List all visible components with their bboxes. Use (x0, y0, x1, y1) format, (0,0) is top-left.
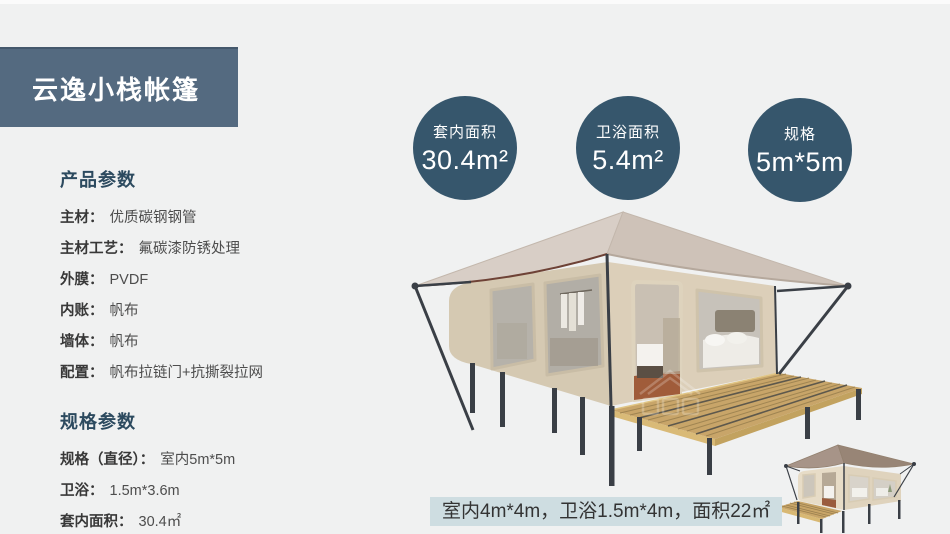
spec-value: 优质碳钢钢管 (110, 210, 197, 226)
spec-row-wall: 墙体：帆布 (60, 330, 400, 351)
spec-label: 外膜： (60, 272, 104, 288)
small-tent-roof (786, 445, 914, 468)
spec-value: 30.4㎡ (139, 514, 182, 530)
spec-row-outer-membrane: 外膜：PVDF (60, 268, 400, 289)
tent-side-windows (491, 275, 603, 375)
spec-value: 室内5m*5m (160, 452, 235, 468)
spec-label: 主材： (60, 210, 104, 226)
spec-row-configuration: 配置：帆布拉链门+抗撕裂拉网 (60, 361, 400, 382)
caption-text: 室内4m*4m，卫浴1.5m*4m，面积22㎡ (442, 501, 770, 522)
spec-row-inner-tent: 内账：帆布 (60, 299, 400, 320)
spec-value: 1.5m*3.6m (110, 483, 180, 499)
spec-row-interior-area: 套内面积：30.4㎡ (60, 510, 400, 531)
spec-row-size: 规格（直径）：室内5m*5m (60, 448, 400, 469)
stat-circle-label: 规格 (748, 123, 852, 144)
spec-label: 规格（直径）： (60, 452, 154, 468)
spec-row-material: 主材：优质碳钢钢管 (60, 206, 400, 227)
stat-circle-interior-area: 套内面积 30.4m² (413, 96, 517, 200)
product-params-header: 产品参数 (60, 166, 400, 192)
spec-value: PVDF (110, 272, 149, 288)
spec-columns: 产品参数 主材：优质碳钢钢管 主材工艺：氟碳漆防锈处理 外膜：PVDF 内账：帆… (60, 166, 400, 534)
stat-circle-value: 5m*5m (748, 147, 852, 178)
tent-front-window (697, 290, 762, 371)
spec-label: 主材工艺： (60, 241, 133, 257)
spec-label: 配置： (60, 365, 104, 381)
spec-label: 卫浴： (60, 483, 104, 499)
spec-label: 套内面积： (60, 514, 133, 530)
product-spec-slide: 云逸小栈帐篷 产品参数 主材：优质碳钢钢管 主材工艺：氟碳漆防锈处理 外膜：PV… (0, 0, 950, 534)
stat-circle-label: 卫浴面积 (576, 121, 680, 142)
spec-value: 帆布 (110, 303, 139, 319)
title-banner: 云逸小栈帐篷 (0, 47, 238, 127)
spec-label: 墙体： (60, 334, 104, 350)
stat-circle-bathroom-area: 卫浴面积 5.4m² (576, 96, 680, 200)
spec-value: 氟碳漆防锈处理 (139, 241, 241, 257)
page-title: 云逸小栈帐篷 (0, 70, 200, 107)
stat-circle-size: 规格 5m*5m (748, 98, 852, 202)
spec-value: 帆布拉链门+抗撕裂拉网 (110, 365, 263, 381)
spec-label: 内账： (60, 303, 104, 319)
stat-circle-value: 30.4m² (413, 145, 517, 176)
spec-value: 帆布 (110, 334, 139, 350)
small-tent-render (770, 430, 950, 534)
spec-params-header: 规格参数 (60, 408, 400, 434)
top-strip (0, 0, 950, 4)
stat-circle-value: 5.4m² (576, 145, 680, 176)
stat-circle-label: 套内面积 (413, 121, 517, 142)
spec-row-bathroom: 卫浴：1.5m*3.6m (60, 479, 400, 500)
spec-row-material-process: 主材工艺：氟碳漆防锈处理 (60, 237, 400, 258)
caption-bar: 室内4m*4m，卫浴1.5m*4m，面积22㎡ (430, 497, 782, 526)
